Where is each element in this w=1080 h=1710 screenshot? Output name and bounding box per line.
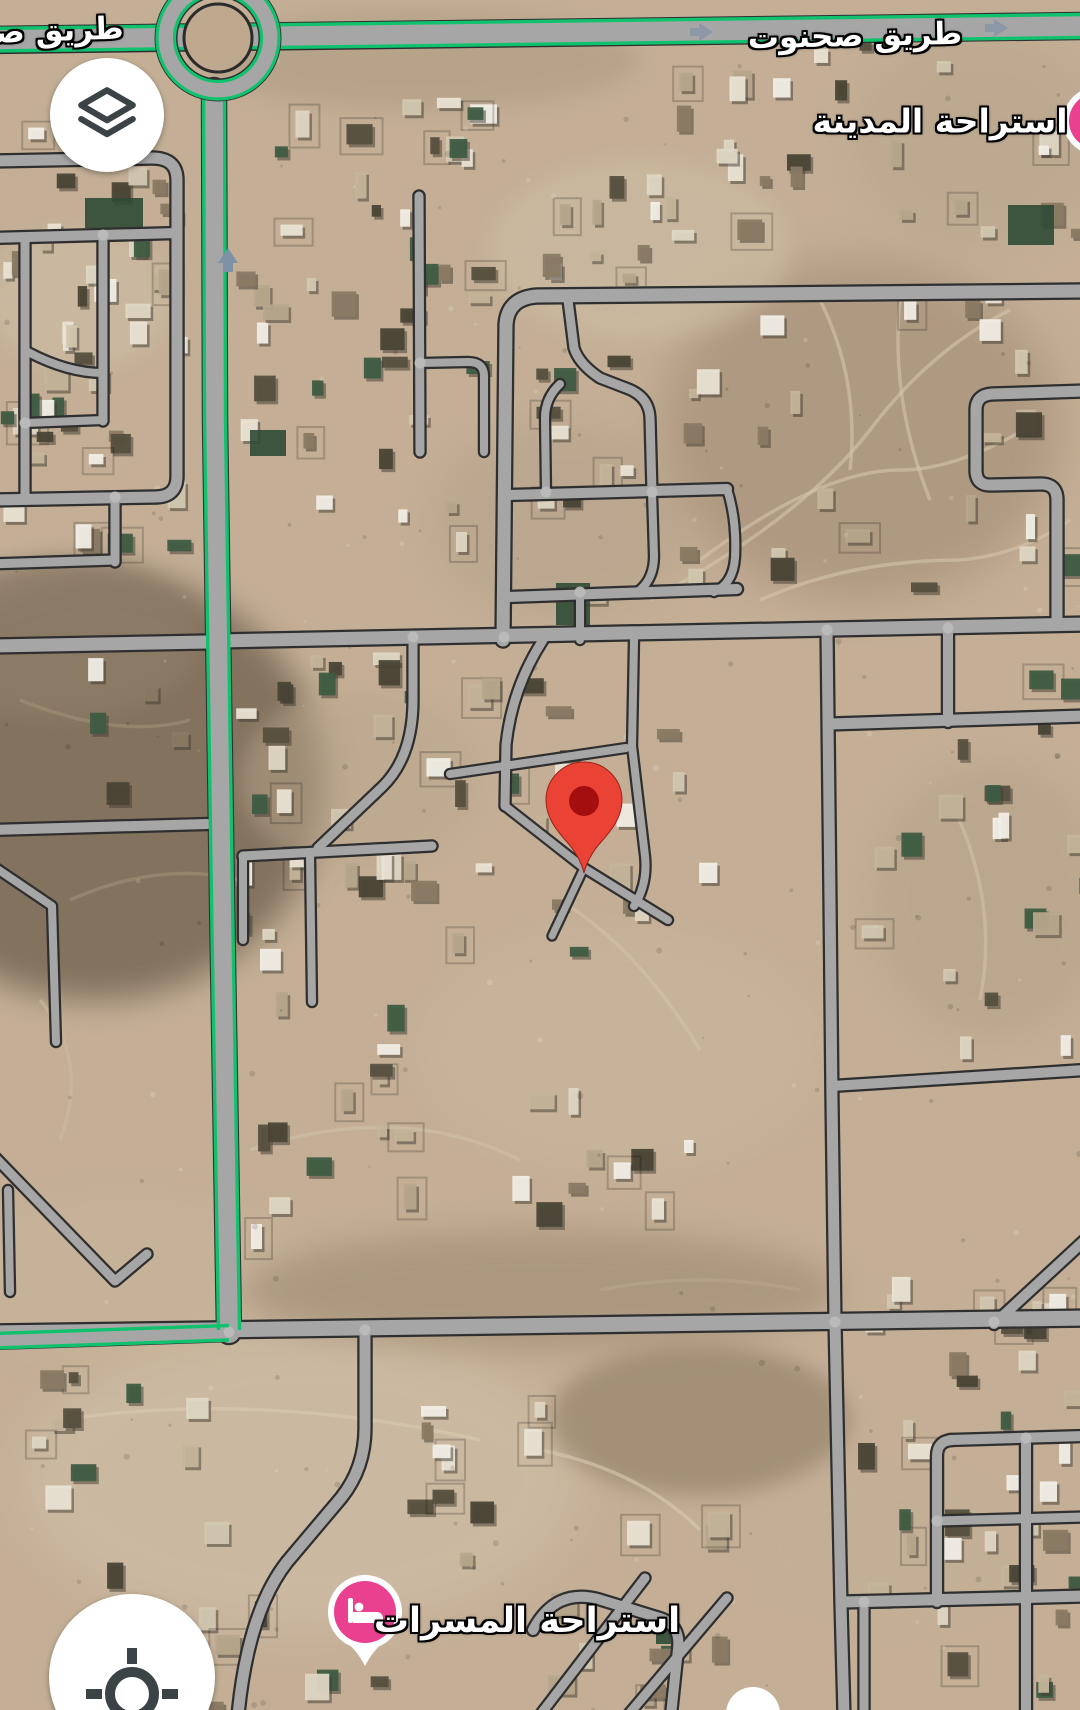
map-viewport[interactable]: طريق صحنوت طريق صح استراحة المدينة استرا… xyxy=(0,0,1080,1710)
poi-label-masarrat-rest[interactable]: استراحة المسرات xyxy=(374,1601,680,1641)
road-label-sahnawt: طريق صحنوت xyxy=(747,16,962,56)
destination-pin[interactable] xyxy=(520,740,650,885)
layers-icon xyxy=(73,81,141,149)
road-label-left-partial: طريق صح xyxy=(0,10,124,51)
poi-label-city-rest[interactable]: استراحة المدينة xyxy=(812,102,1067,141)
layers-button[interactable] xyxy=(50,58,164,172)
map-pin-icon xyxy=(546,762,622,873)
map-pin-inner-dot xyxy=(569,786,599,816)
my-location-icon xyxy=(66,1630,198,1710)
